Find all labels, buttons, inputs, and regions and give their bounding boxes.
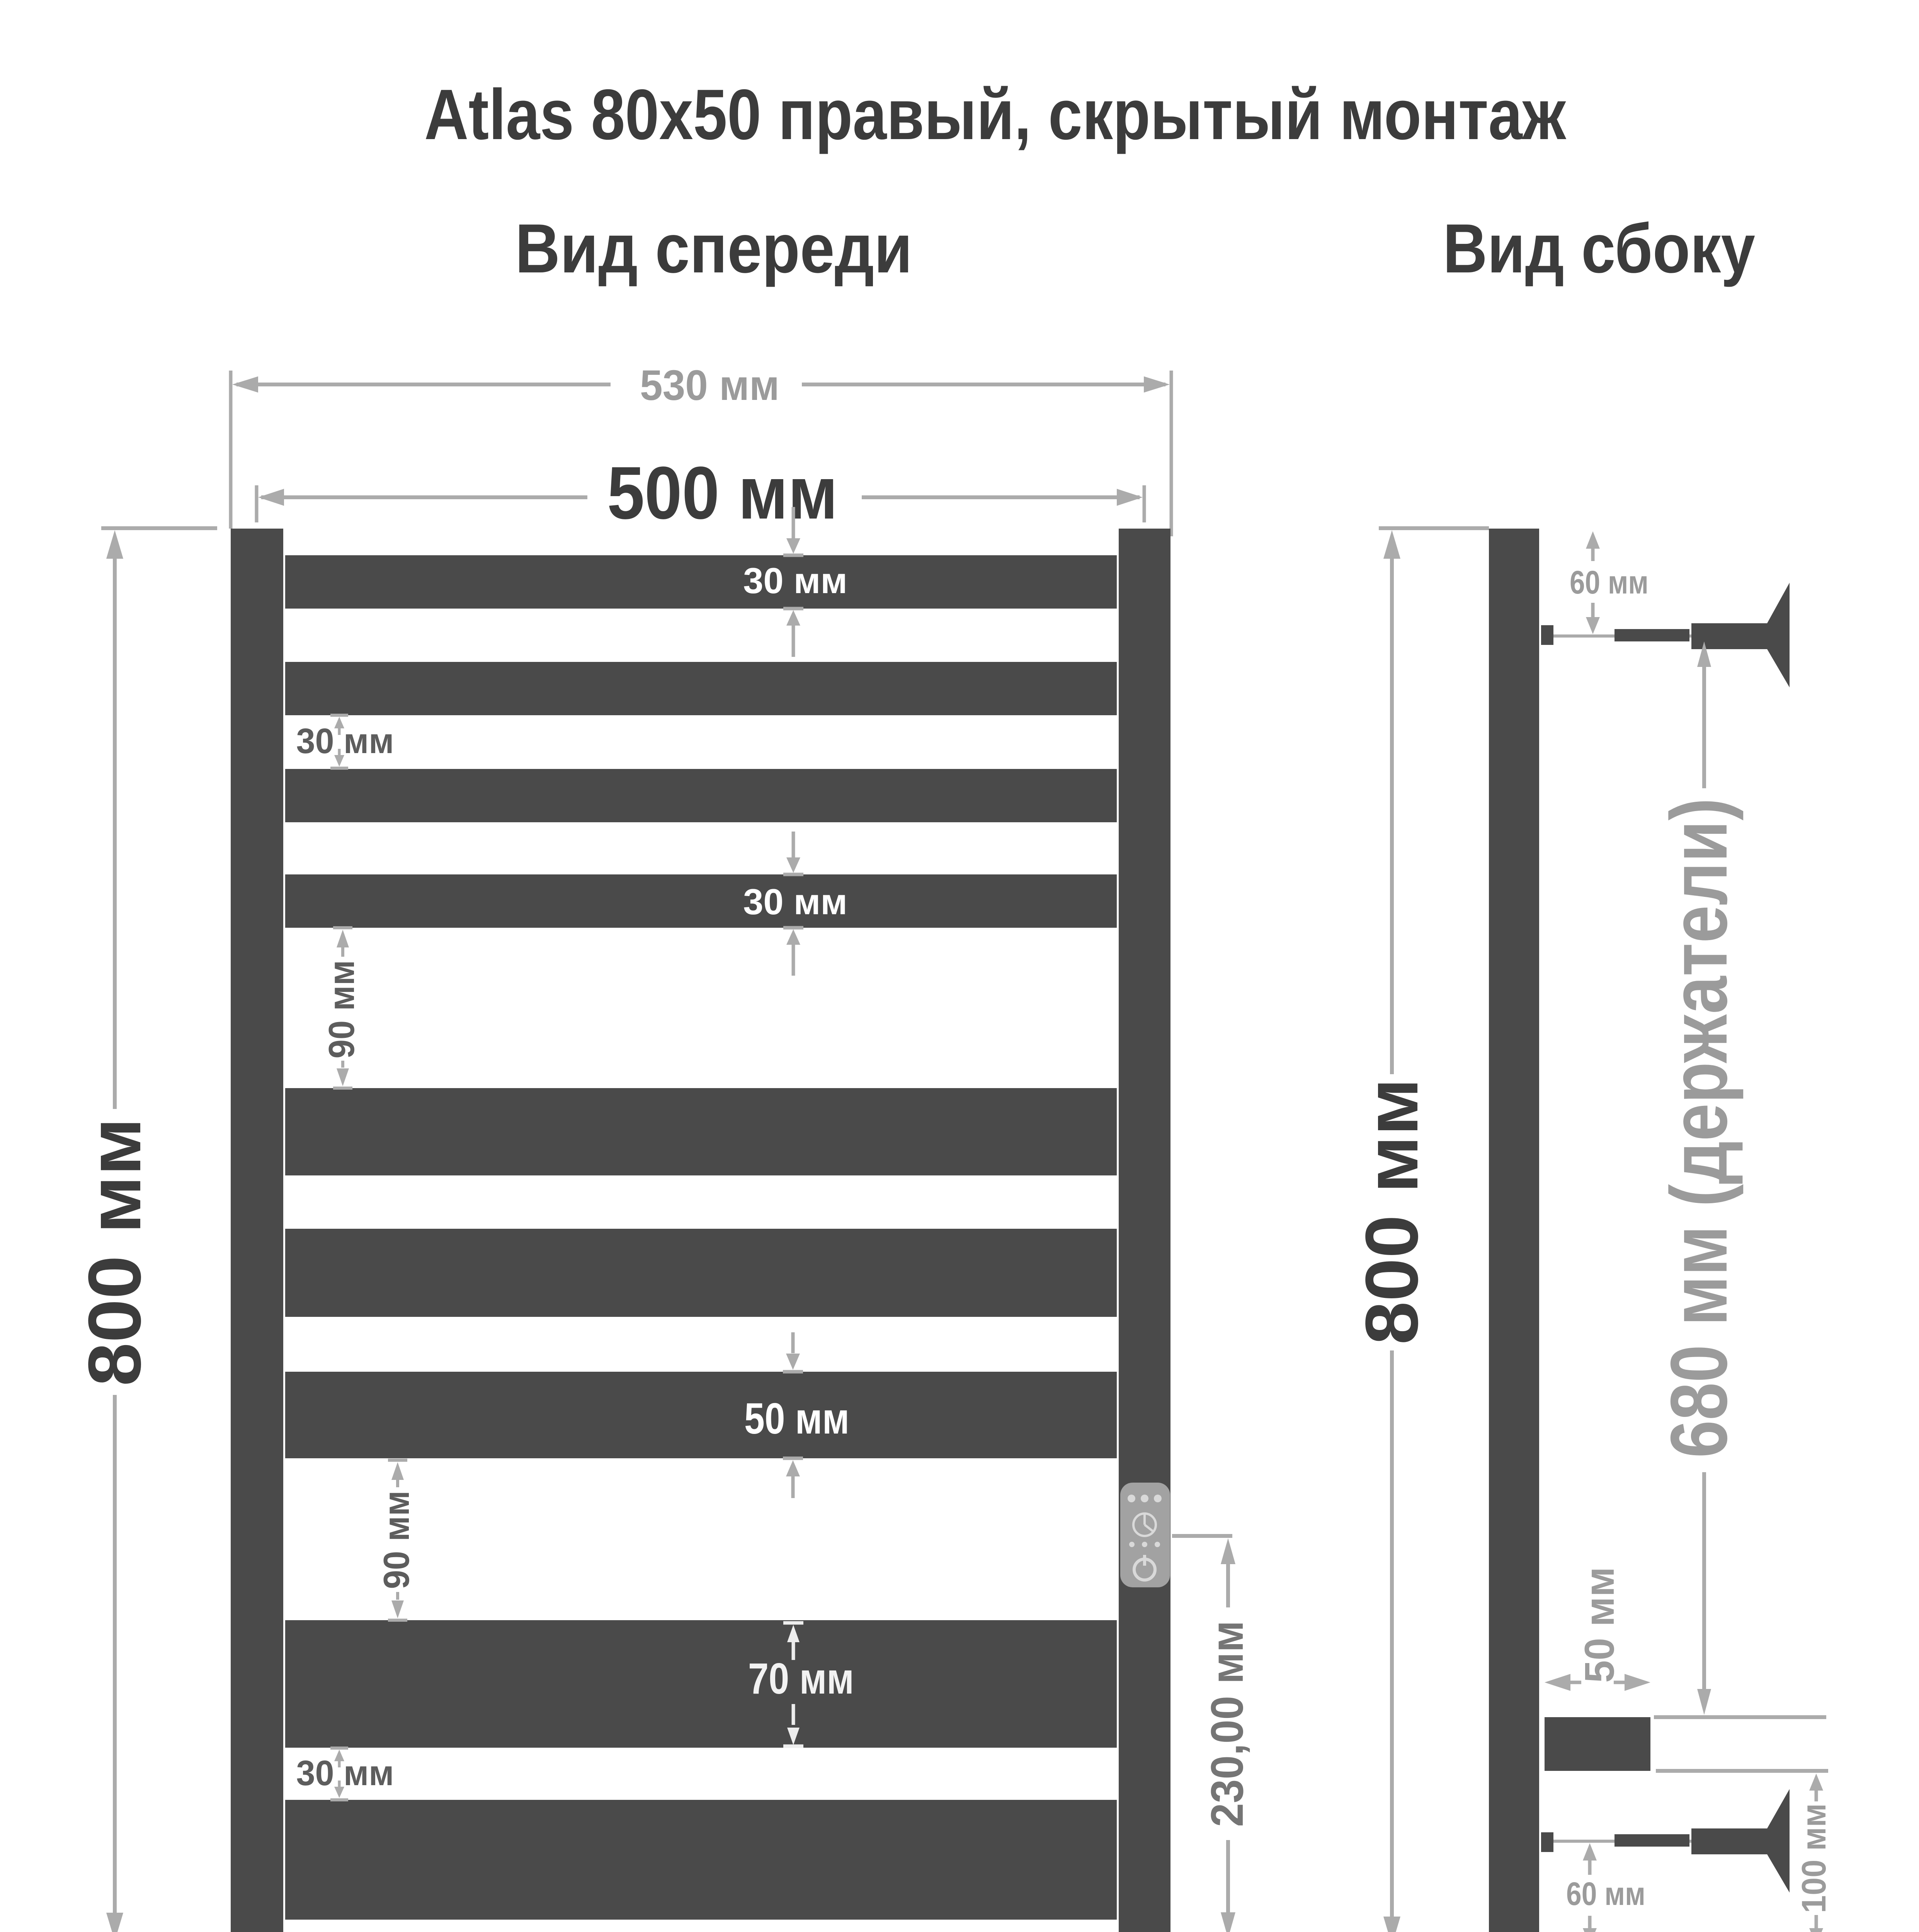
svg-text:800 мм: 800 мм [1350, 1078, 1433, 1345]
svg-text:90 мм: 90 мм [321, 960, 362, 1059]
svg-text:60 мм: 60 мм [1570, 564, 1649, 600]
svg-text:90 мм: 90 мм [376, 1491, 417, 1589]
svg-text:500 мм: 500 мм [607, 451, 838, 534]
svg-text:30 мм: 30 мм [296, 721, 394, 761]
svg-text:70 мм: 70 мм [748, 1654, 854, 1703]
svg-text:230,00 мм: 230,00 мм [1202, 1621, 1253, 1827]
svg-text:50 мм: 50 мм [744, 1394, 849, 1443]
svg-text:30 мм: 30 мм [743, 560, 847, 601]
svg-text:100 мм: 100 мм [1795, 1803, 1833, 1913]
svg-text:Вид сбоку: Вид сбоку [1443, 210, 1755, 287]
svg-text:Вид спереди: Вид спереди [515, 210, 912, 287]
svg-text:60 мм: 60 мм [1566, 1876, 1645, 1912]
svg-text:680 мм (держатели): 680 мм (держатели) [1654, 798, 1744, 1458]
svg-text:30 мм: 30 мм [296, 1753, 394, 1793]
svg-text:50 мм: 50 мм [1576, 1567, 1623, 1683]
svg-text:530 мм: 530 мм [640, 362, 779, 409]
svg-text:800 мм: 800 мм [73, 1118, 156, 1386]
svg-text:Atlas 80x50 правый, скрытый мо: Atlas 80x50 правый, скрытый монтаж [424, 75, 1567, 155]
svg-text:30 мм: 30 мм [743, 881, 847, 922]
